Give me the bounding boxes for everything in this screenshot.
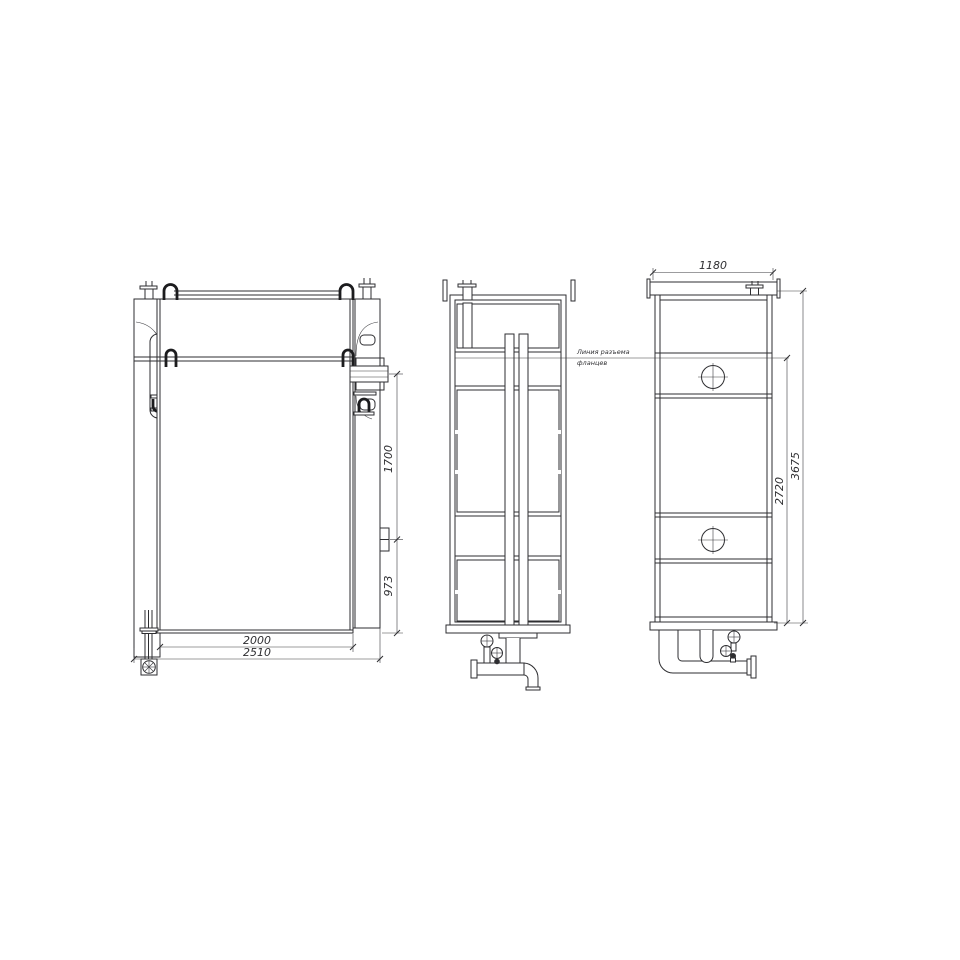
dim-side-width: 1180 <box>699 259 727 272</box>
dim-lower-height: 973 <box>382 576 395 597</box>
level-bracket <box>380 528 389 551</box>
front-view <box>134 278 389 675</box>
top-right-nozzle <box>359 278 375 299</box>
base-skirt <box>650 622 777 630</box>
drain-valve-symbol <box>143 661 156 674</box>
technical-drawing-page: Линия разъема фланцев 2000 2510 <box>0 0 960 960</box>
dim-overall-height: 3675 <box>789 452 802 480</box>
top-left-nozzle <box>140 281 157 299</box>
side-piping <box>659 630 756 678</box>
dimension-1180: 1180 <box>650 259 776 280</box>
pipe-flange <box>747 659 751 675</box>
annotation-line-2: фланцев <box>577 359 607 367</box>
drain-valve-assembly <box>140 610 158 675</box>
section-view <box>443 280 575 690</box>
lug-post-left <box>443 280 447 301</box>
valve-handwheel-icon <box>492 648 503 665</box>
right-cover-panel <box>355 299 380 628</box>
valve-handwheel-icon <box>481 635 493 663</box>
dim-nozzle-height: 1700 <box>382 445 395 473</box>
dimension-2720-3675: 2720 3675 <box>773 288 808 626</box>
side-view <box>647 279 780 678</box>
annotation-line-1: Линия разъема <box>576 348 630 356</box>
pipe-flange <box>471 660 477 678</box>
dimension-1700-973: 1700 973 <box>382 371 403 636</box>
dim-flange-height: 2720 <box>773 477 786 505</box>
lug-post-right <box>571 280 575 301</box>
dim-outer-width: 2510 <box>243 646 271 659</box>
side-nozzle-assembly <box>350 358 388 415</box>
side-shell <box>655 295 772 622</box>
technical-drawing: Линия разъема фланцев 2000 2510 <box>0 0 960 960</box>
